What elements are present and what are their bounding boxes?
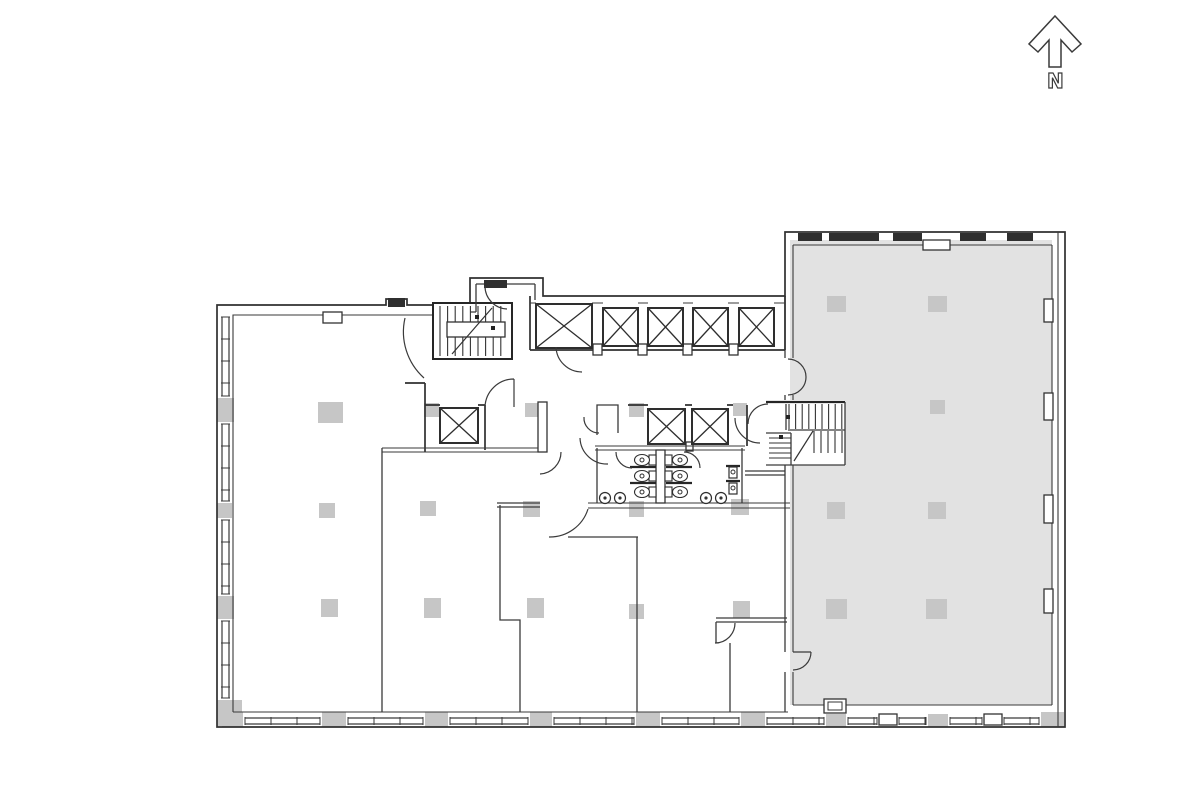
stair-direction-dot <box>475 315 479 319</box>
column-marker <box>826 714 846 727</box>
janitor-room-walls <box>597 405 618 435</box>
column-marker <box>928 714 948 727</box>
north-arrow-icon <box>1029 16 1081 67</box>
column-marker <box>827 502 845 519</box>
stair-direction-dot <box>786 415 790 419</box>
column-marker <box>928 502 946 519</box>
pilaster <box>1044 495 1053 523</box>
column-marker <box>420 501 436 516</box>
column-marker <box>636 712 660 727</box>
mid-bank-walls <box>628 405 747 446</box>
wall-vent-box <box>879 714 897 725</box>
elevator-shaft <box>648 308 683 346</box>
urinal <box>729 483 737 494</box>
door-jamb <box>683 344 692 355</box>
toilet-fixture <box>635 471 657 482</box>
wall-vent-box <box>984 714 1002 725</box>
stair-b-enclosure <box>766 400 845 465</box>
restroom-center-wall <box>656 450 665 503</box>
elevator-shaft <box>739 308 774 346</box>
window-bar <box>829 233 879 241</box>
north-arrow: N <box>1029 16 1081 93</box>
sink-drain <box>618 496 621 499</box>
stair-direction-dot <box>779 435 783 439</box>
column-marker <box>217 596 234 619</box>
facade-notch <box>323 312 342 323</box>
corridor-wall <box>382 448 538 452</box>
window-bar-top-left <box>388 298 405 307</box>
stair-landing <box>447 322 505 337</box>
stair-direction-dot <box>491 326 495 330</box>
column-marker <box>425 712 448 727</box>
toilet-fixture <box>665 455 688 466</box>
north-label: N <box>1047 69 1064 93</box>
door-arc <box>540 452 561 474</box>
column-marker <box>527 598 544 618</box>
door-arc <box>549 509 588 537</box>
column-marker <box>1041 712 1064 727</box>
column-marker <box>926 599 947 619</box>
door-arc <box>485 379 514 407</box>
urinal <box>729 467 737 478</box>
restrooms <box>588 446 790 508</box>
sink-drain <box>603 496 606 499</box>
door-arc <box>403 318 424 378</box>
column-marker <box>318 402 343 423</box>
elevator-shaft <box>603 308 638 346</box>
toilet-fixture <box>635 487 657 498</box>
door-arc <box>616 452 632 468</box>
pilaster <box>1044 299 1053 322</box>
pilaster <box>1044 589 1053 613</box>
floor-plan-page: { "north_indicator": { "label": "N" }, "… <box>0 0 1200 800</box>
column-marker <box>319 503 335 518</box>
elevator-shaft <box>536 304 592 348</box>
restroom-side-walls <box>597 448 785 503</box>
pilaster <box>1044 393 1053 420</box>
sink-drain <box>719 496 722 499</box>
toilet-fixture <box>665 471 688 482</box>
window-bar <box>893 233 922 241</box>
door-arc <box>715 623 735 643</box>
elevator-shaft <box>692 409 728 444</box>
column-marker <box>217 503 232 518</box>
toilet-fixture <box>635 455 657 466</box>
door-arc <box>580 438 608 464</box>
column-marker <box>222 712 243 727</box>
partitions <box>382 448 787 712</box>
restroom-north-wall <box>595 446 745 450</box>
column-marker <box>321 599 338 617</box>
door-jamb <box>593 344 602 355</box>
door-arc <box>748 404 768 424</box>
column-marker <box>424 598 441 618</box>
elevator-shaft <box>693 308 728 346</box>
toilet-fixture <box>665 487 688 498</box>
tenant-top-jog <box>923 240 950 250</box>
column-marker <box>733 601 750 618</box>
door-jamb <box>729 344 738 355</box>
threshold-box <box>824 699 846 713</box>
floor-plan-canvas: N <box>0 0 1200 800</box>
column-marker <box>733 403 747 416</box>
vestibule-window-bar <box>484 280 507 288</box>
column-marker <box>827 296 846 312</box>
column-marker <box>928 296 947 312</box>
door-jamb <box>638 344 647 355</box>
stair-treads <box>440 306 842 461</box>
window-bar <box>960 233 986 241</box>
elevator-shaft <box>648 409 685 444</box>
elevator-shaft <box>440 408 478 443</box>
column-marker <box>530 712 552 727</box>
window-bar <box>798 233 822 241</box>
column-marker <box>731 499 749 515</box>
partition-walls <box>382 448 787 712</box>
column-marker <box>217 398 234 422</box>
column-marker <box>930 400 945 414</box>
column-marker <box>741 712 765 727</box>
column-marker <box>826 599 847 619</box>
column-marker <box>322 712 346 727</box>
window-bar <box>1007 233 1033 241</box>
sink-drain <box>704 496 707 499</box>
lobby-wall <box>538 402 547 452</box>
